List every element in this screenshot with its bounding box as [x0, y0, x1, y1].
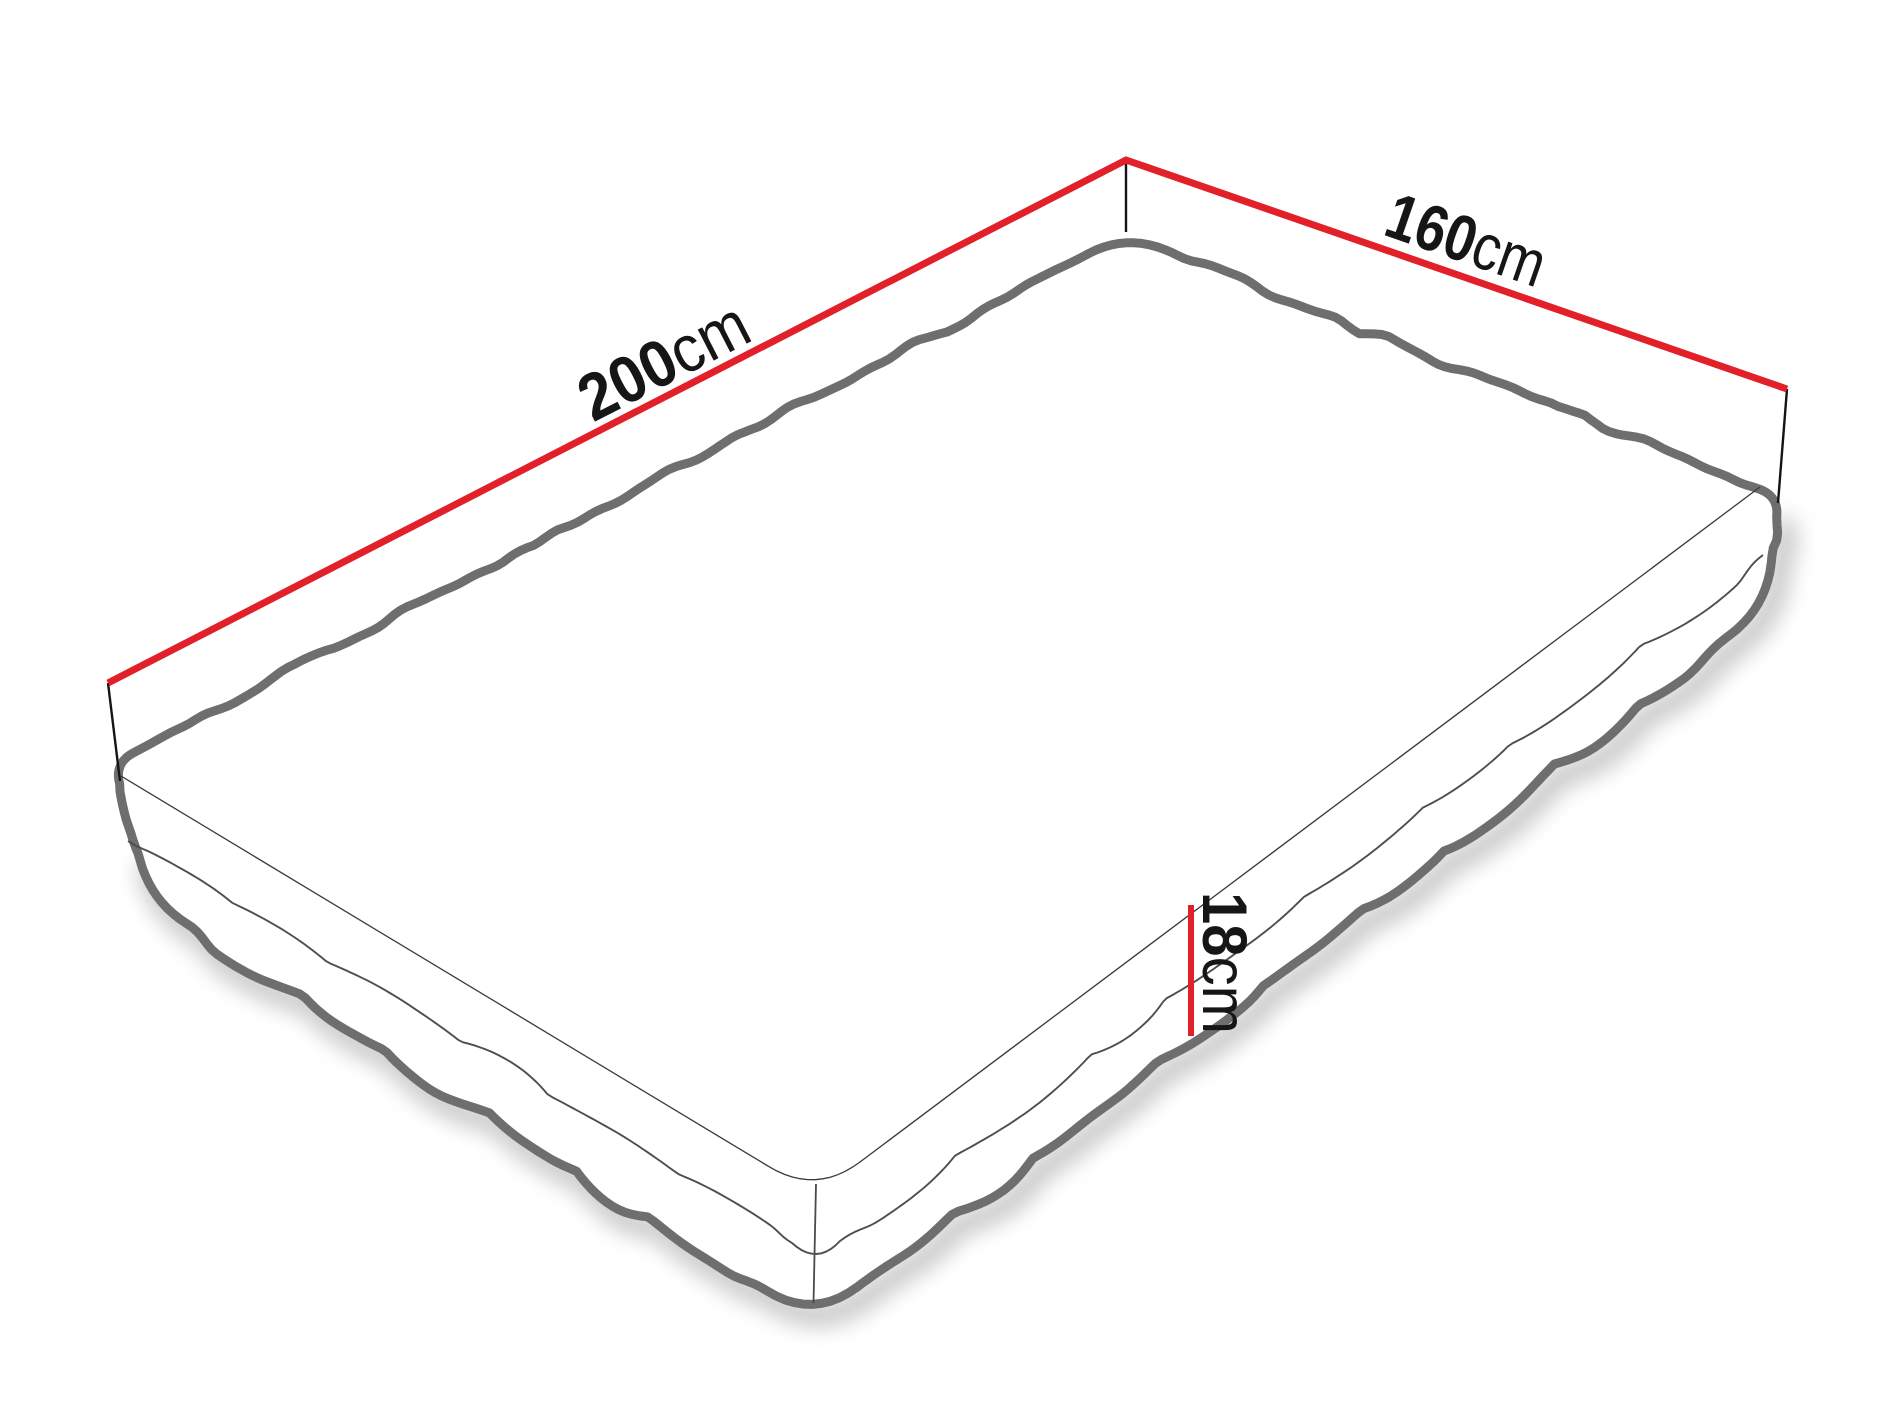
svg-text:18cm: 18cm — [1189, 892, 1259, 1034]
